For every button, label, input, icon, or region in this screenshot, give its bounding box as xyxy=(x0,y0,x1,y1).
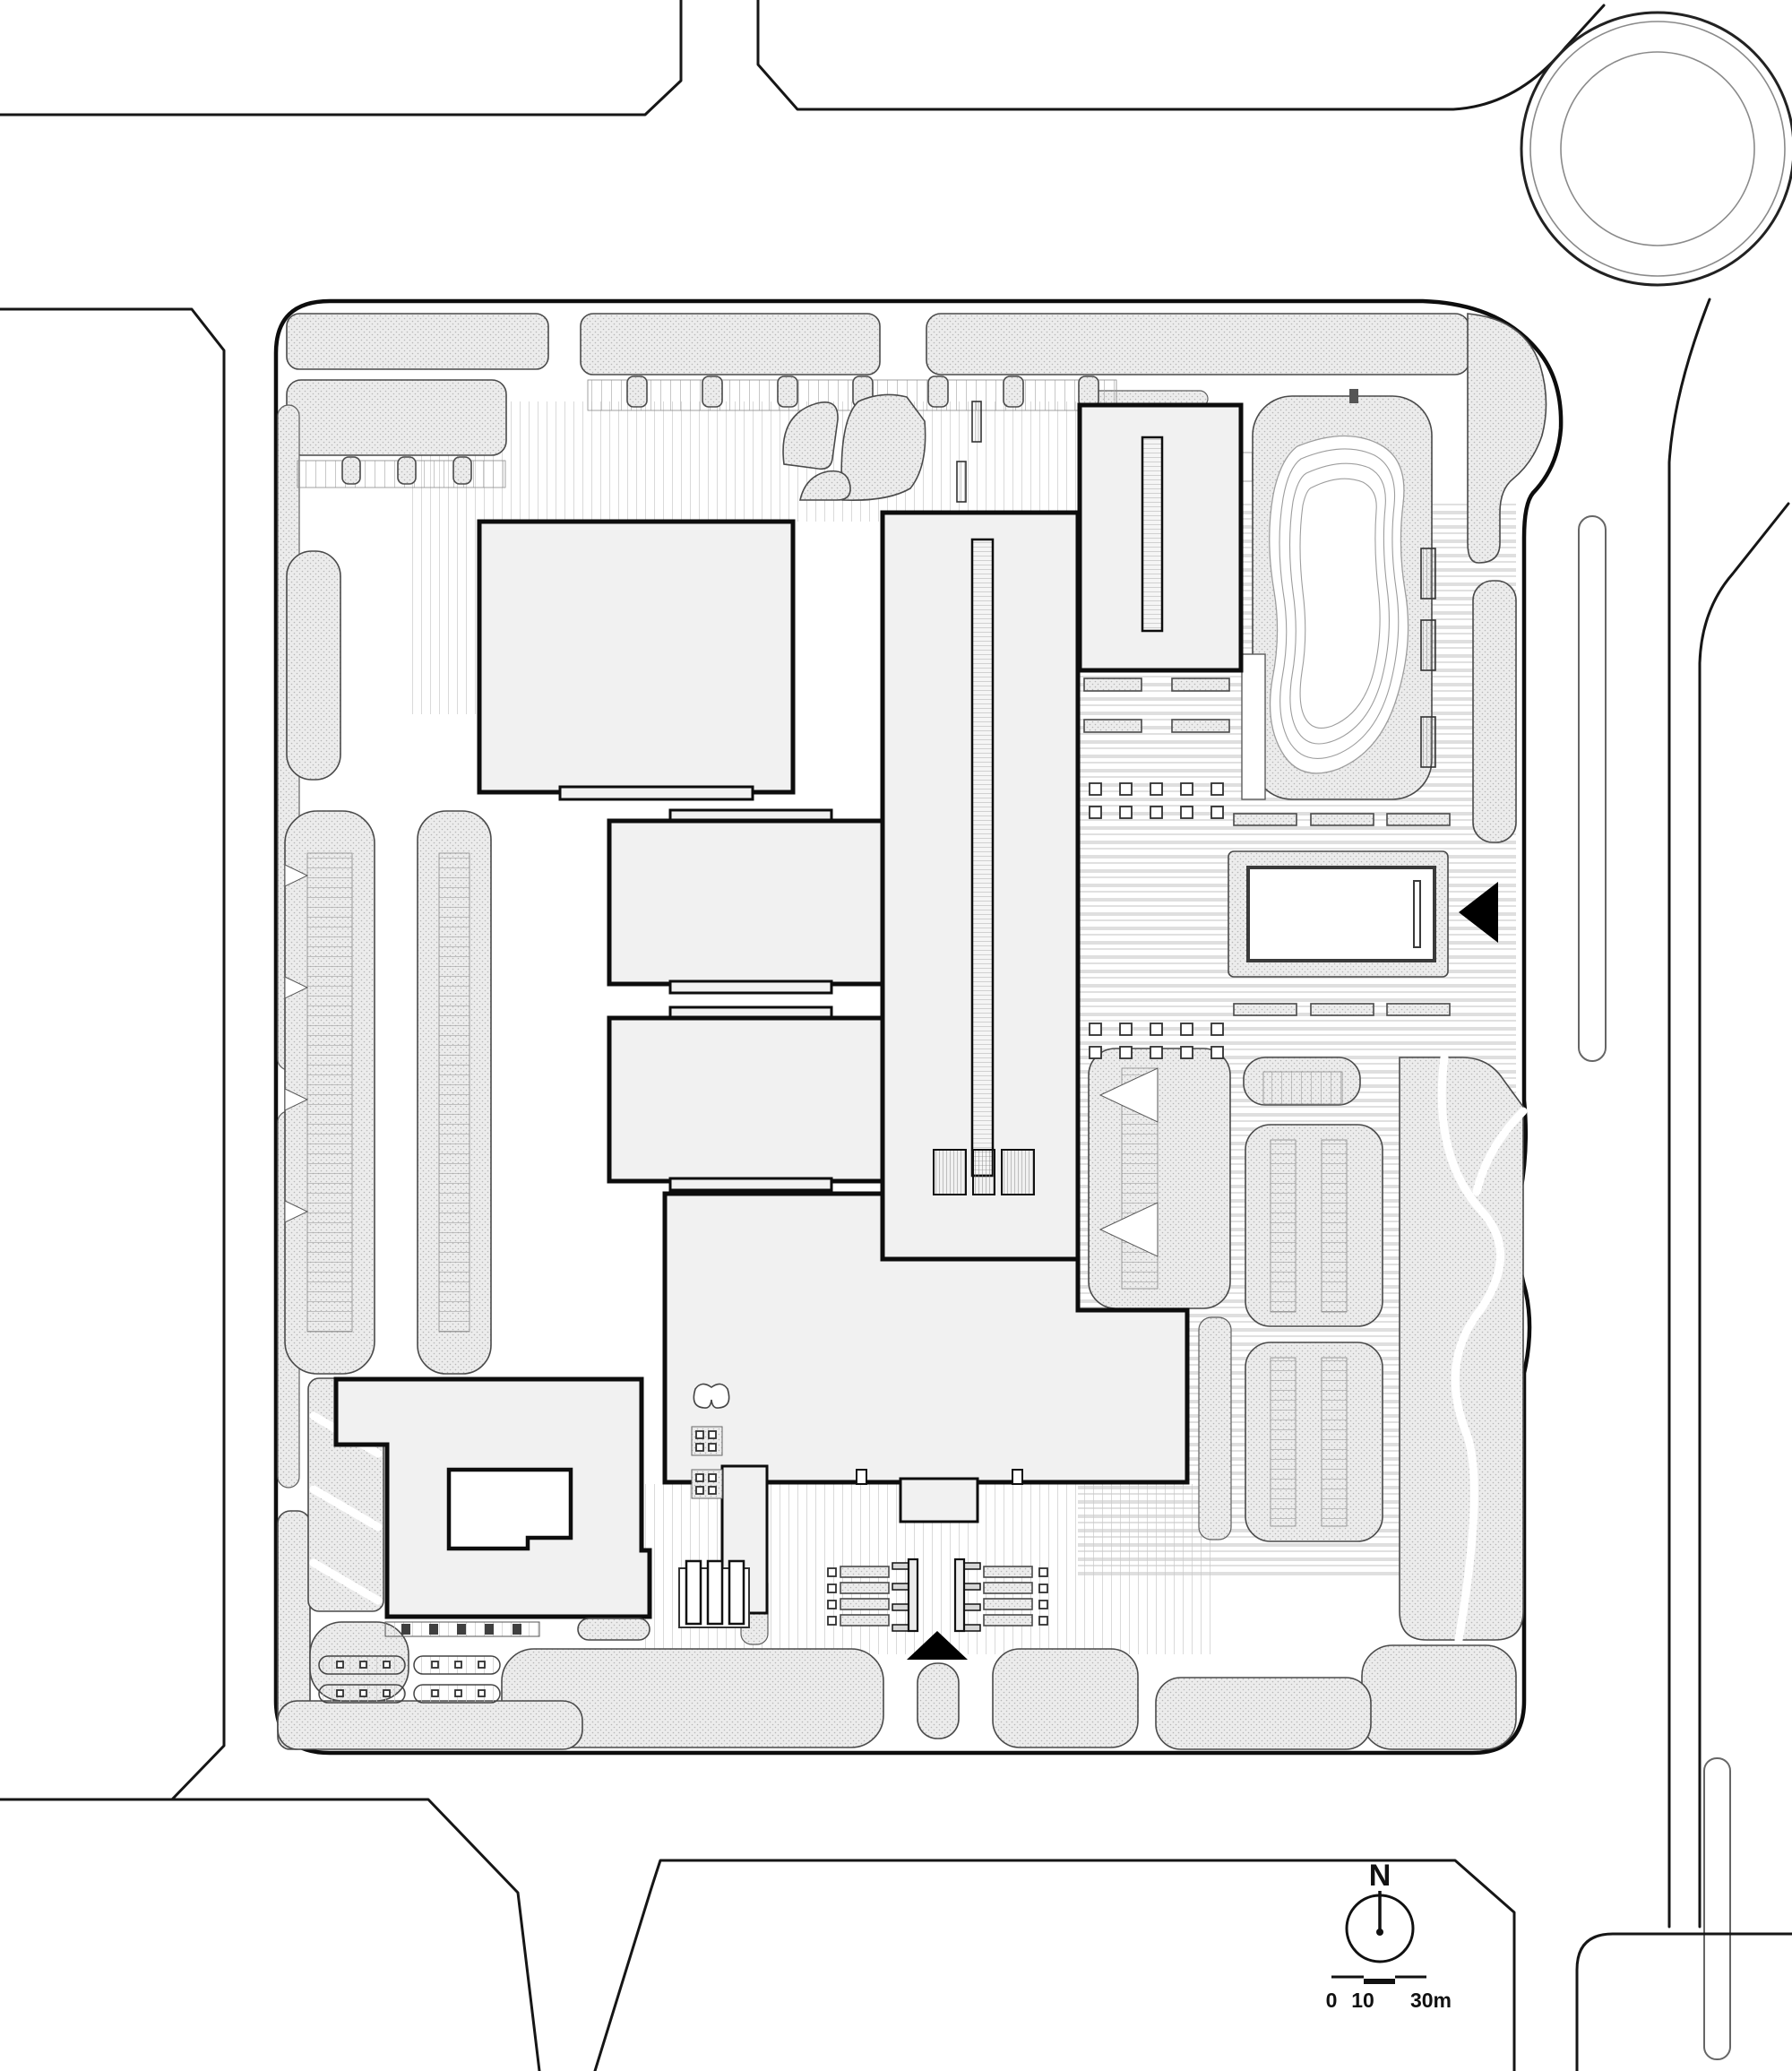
road-edge-northwest xyxy=(0,0,681,115)
crosswalk-strip xyxy=(385,1618,650,1640)
hedge-strip-southwest xyxy=(278,1701,582,1749)
pond-bench xyxy=(1421,620,1435,670)
anchor-store-parapet xyxy=(560,787,753,799)
mall-spine-skylight xyxy=(972,539,993,1176)
north-label: N xyxy=(1369,1859,1391,1893)
hedge-block xyxy=(287,314,548,369)
bench-bar xyxy=(957,462,966,502)
hedge-strip-east xyxy=(1473,581,1516,842)
pond-inlet xyxy=(1349,389,1358,403)
hedge-block-south xyxy=(1156,1678,1371,1749)
hedge-block xyxy=(581,314,880,375)
north-indicator: N xyxy=(1347,1859,1413,1962)
parking-lot-west-a xyxy=(285,811,375,1374)
road-edge-east-outer xyxy=(1700,504,1788,1927)
hedge-block xyxy=(926,314,1469,375)
scale-tick-label: 10 xyxy=(1351,1989,1374,2012)
pool-weir xyxy=(1414,881,1420,947)
road-edge-north xyxy=(758,0,1604,109)
parking-lot-southeast-lower xyxy=(1245,1342,1383,1541)
entry-island xyxy=(918,1663,959,1739)
reflecting-pool xyxy=(1228,851,1448,977)
south-entrance-vestibule xyxy=(900,1479,978,1522)
hedge-corner-southeast xyxy=(1362,1645,1516,1749)
spine-entry-canopy xyxy=(934,1150,966,1195)
hedge-block-south xyxy=(993,1649,1138,1747)
pond-bench xyxy=(1421,717,1435,767)
retail-block-upper xyxy=(609,821,883,984)
link-canopy xyxy=(670,981,831,993)
northeast-building-skylight xyxy=(1142,437,1162,631)
adjacent-parcel-west xyxy=(0,309,224,1799)
road-median-strip xyxy=(1579,516,1606,1061)
trellis-structure xyxy=(679,1561,749,1627)
pool-basin xyxy=(1248,867,1434,961)
hedge-block xyxy=(287,380,506,455)
scale-tick-label: 0 xyxy=(1326,1989,1338,2012)
door-mark xyxy=(1012,1470,1022,1484)
spine-entry-canopy xyxy=(973,1150,995,1195)
spine-entry-canopy xyxy=(1002,1150,1034,1195)
site-plan-drawing: N 0 10 30m xyxy=(0,0,1792,2071)
planter-blob xyxy=(841,394,926,500)
pond-deck xyxy=(1242,654,1265,799)
door-mark xyxy=(857,1470,866,1484)
retail-block-lower xyxy=(609,1018,883,1181)
road-edge-southwest xyxy=(172,1799,539,2071)
west-walkway-paving xyxy=(406,522,479,714)
road-edge-east-inner xyxy=(1669,299,1710,1927)
parking-lot-west-b xyxy=(418,811,491,1374)
roundabout-middle-ring xyxy=(1530,22,1785,276)
stall-strip-north xyxy=(588,380,1116,410)
adjacent-parcel-southeast xyxy=(1577,1934,1792,2071)
southwest-building-courtyard xyxy=(449,1470,571,1549)
link-canopy xyxy=(670,1178,831,1190)
road-median-strip-south xyxy=(1704,1758,1730,2059)
roundabout-outer-ring xyxy=(1521,13,1792,285)
site-plan-page: N 0 10 30m xyxy=(0,0,1792,2071)
scale-bar: 0 10 30m xyxy=(1326,1977,1452,2012)
roundabout xyxy=(1521,13,1792,285)
north-needle-hub xyxy=(1376,1929,1383,1936)
scale-tick-label: 30m xyxy=(1410,1989,1452,2012)
anchor-store-building xyxy=(479,522,793,792)
pond-garden xyxy=(1242,389,1435,799)
bench-bar xyxy=(972,401,981,442)
roundabout-inner-ring xyxy=(1561,52,1754,246)
pond-bench xyxy=(1421,548,1435,599)
dropoff-island-west xyxy=(287,551,340,780)
